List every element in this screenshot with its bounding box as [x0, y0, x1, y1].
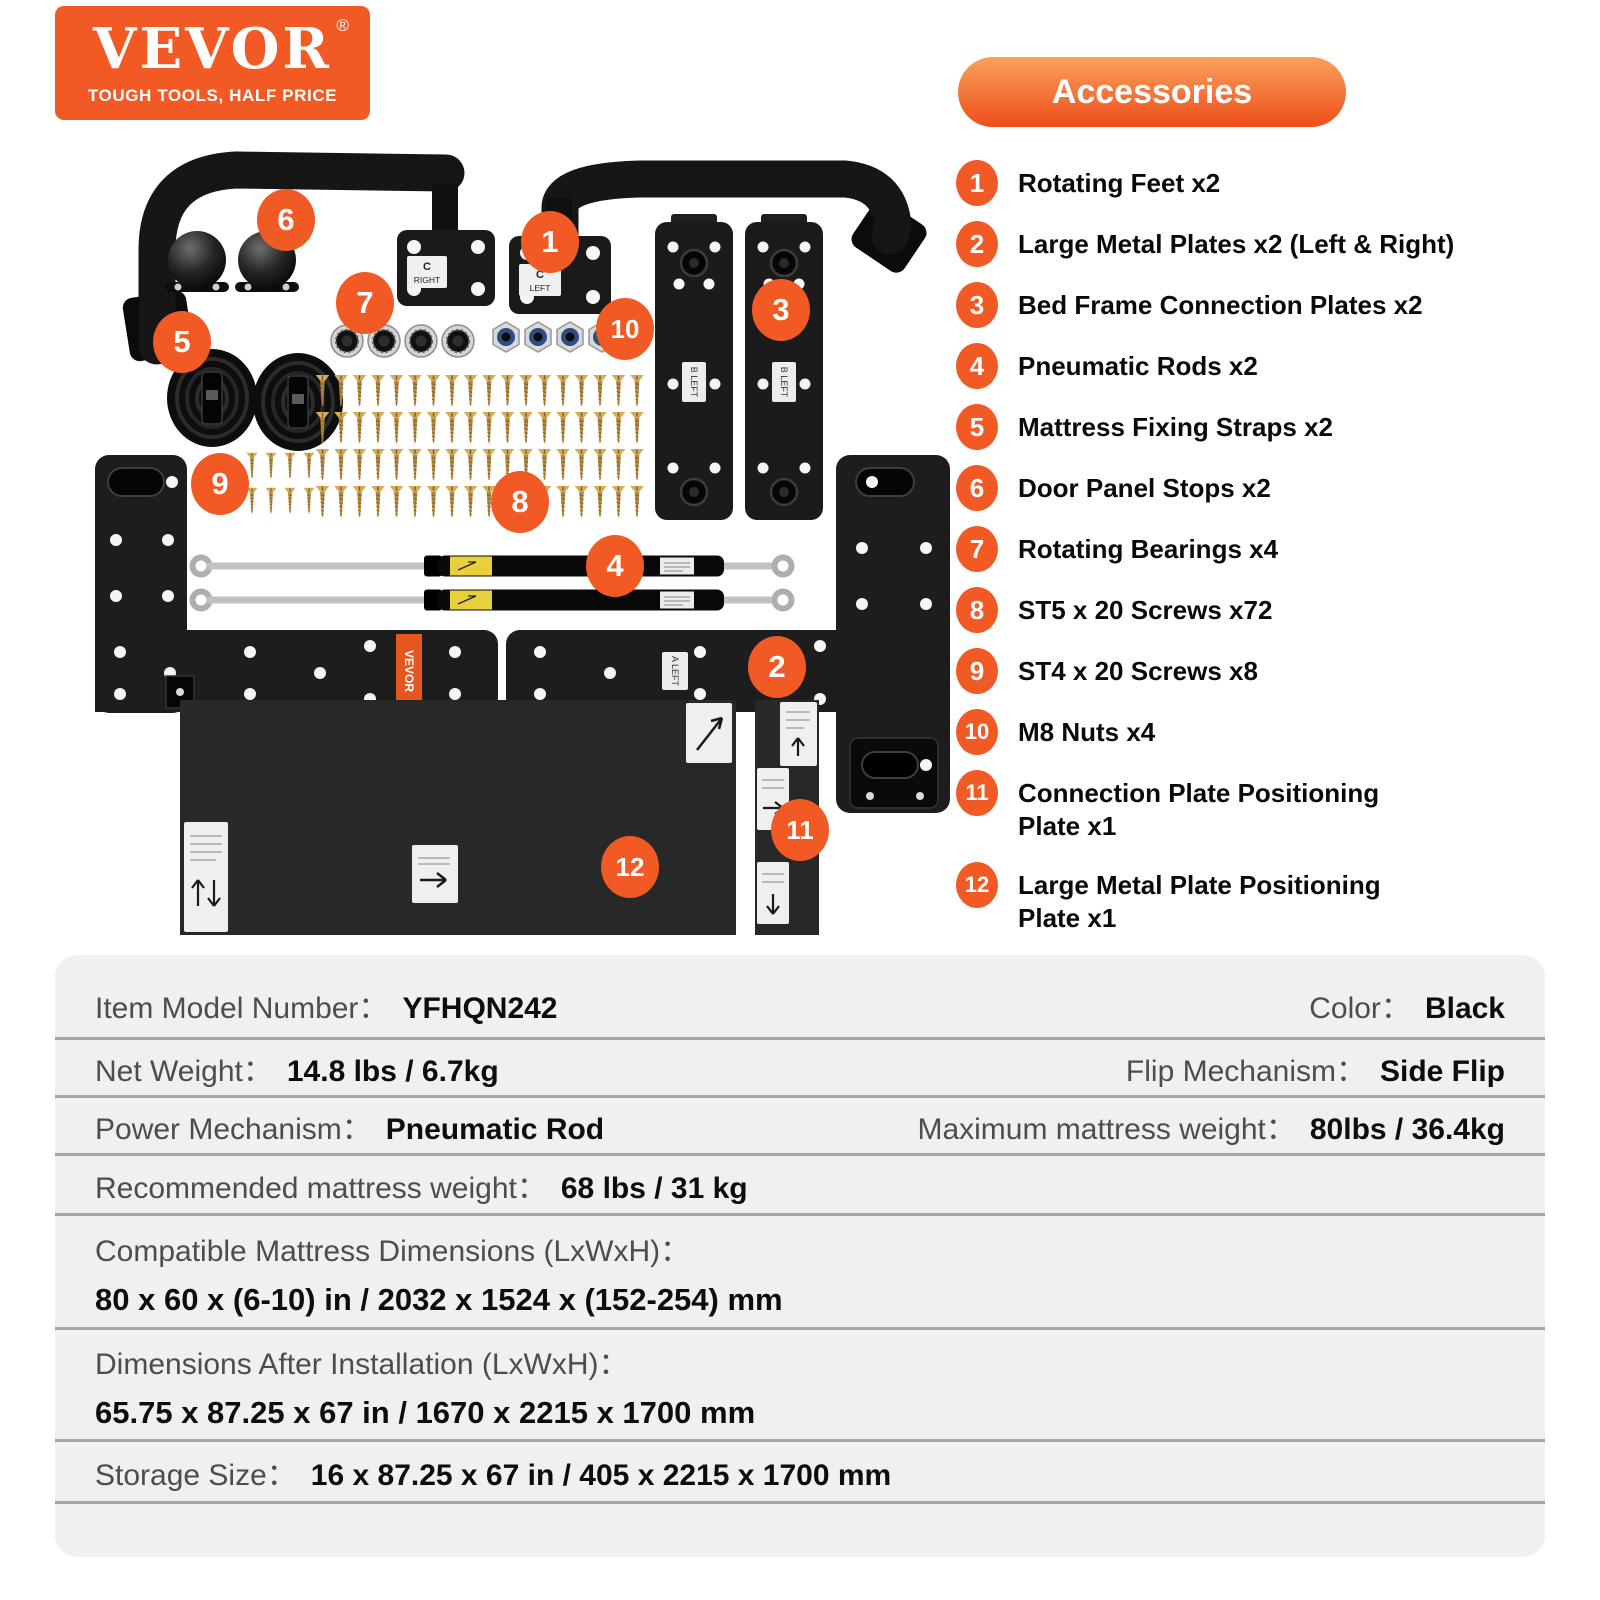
item-number-badge: 7: [956, 526, 998, 572]
accessory-label-line: Pneumatic Rods x2: [1018, 350, 1258, 383]
spec-cell: Net Weight：14.8 lbs / 6.7kg: [95, 1046, 499, 1090]
spec-field-label: Color：: [1309, 983, 1411, 1027]
bed-frame-connection-plates: B LEFTB LEFT: [655, 214, 823, 520]
accessory-label-line: Bed Frame Connection Plates x2: [1018, 289, 1423, 322]
brand-logo: VEVOR® TOUGH TOOLS, HALF PRICE: [55, 6, 370, 120]
callout-badge: 7: [336, 272, 394, 334]
accessory-label: Rotating Feet x2: [1018, 160, 1220, 200]
callout-badge: 2: [748, 636, 806, 698]
accessory-label: Rotating Bearings x4: [1018, 526, 1278, 566]
accessory-label: ST5 x 20 Screws x72: [1018, 587, 1272, 627]
spec-field-label: Maximum mattress weight：: [917, 1104, 1295, 1148]
spec-field-value: 65.75 x 87.25 x 67 in / 1670 x 2215 x 17…: [95, 1395, 755, 1431]
spec-field-value: YFHQN242: [402, 992, 557, 1026]
spec-cell: Item Model Number：YFHQN242: [95, 983, 558, 1027]
spec-cell: Power Mechanism：Pneumatic Rod: [95, 1104, 604, 1148]
spec-field-label: Compatible Mattress Dimensions (LxWxH)：: [95, 1226, 690, 1270]
spec-field-value: Black: [1425, 992, 1505, 1026]
accessory-label: Door Panel Stops x2: [1018, 465, 1271, 505]
item-number-badge: 9: [956, 648, 998, 694]
callout-badge: 1: [521, 211, 579, 273]
spec-field-label: Storage Size：: [95, 1450, 297, 1494]
accessory-label-line: Mattress Fixing Straps x2: [1018, 411, 1333, 444]
spec-cell: Recommended mattress weight：68 lbs / 31 …: [95, 1163, 748, 1207]
callout-badge: 8: [491, 471, 549, 533]
accessory-label-line: Plate x1: [1018, 810, 1379, 843]
spec-row: Dimensions After Installation (LxWxH)：65…: [55, 1330, 1545, 1442]
item-number-badge: 1: [956, 160, 998, 206]
bracket-c-left-label2: LEFT: [530, 283, 551, 293]
accessory-label: M8 Nuts x4: [1018, 709, 1155, 749]
callout-badge: 12: [601, 836, 659, 898]
spec-cell: Color：Black: [1309, 983, 1505, 1027]
spec-row: Compatible Mattress Dimensions (LxWxH)：8…: [55, 1216, 1545, 1330]
brand-wordmark: VEVOR: [93, 16, 332, 82]
large-plate-a-left-label: A LEFT: [670, 656, 680, 687]
callout-badge: 4: [586, 535, 644, 597]
registered-trademark-icon: ®: [336, 17, 352, 34]
accessory-label-line: Rotating Bearings x4: [1018, 533, 1278, 566]
accessory-label-line: Plate x1: [1018, 902, 1381, 935]
large-plate-positioning-plate: [180, 700, 736, 935]
callout-badge: 6: [257, 189, 315, 251]
accessory-label-line: ST4 x 20 Screws x8: [1018, 655, 1258, 688]
callout-badge: 9: [191, 453, 249, 515]
spec-table: Item Model Number：YFHQN242Color：BlackNet…: [55, 955, 1545, 1557]
connection-plate-b-left-label: B LEFT: [779, 367, 789, 398]
spec-field-value: 16 x 87.25 x 67 in / 405 x 2215 x 1700 m…: [311, 1459, 891, 1493]
accessories-list: 1Rotating Feet x22Large Metal Plates x2 …: [956, 160, 1568, 954]
brand-logo-text: VEVOR®: [93, 21, 332, 77]
accessory-item: 7Rotating Bearings x4: [956, 526, 1568, 587]
spec-cell: Maximum mattress weight：80lbs / 36.4kg: [917, 1104, 1505, 1148]
callout-badge: 5: [153, 311, 211, 373]
accessory-label-line: Door Panel Stops x2: [1018, 472, 1271, 505]
connection-plate-b-left-label: B LEFT: [689, 367, 699, 398]
item-number-badge: 6: [956, 465, 998, 511]
product-infographic: VEVOR® TOUGH TOOLS, HALF PRICE Accessori…: [0, 0, 1600, 1600]
item-number-badge: 4: [956, 343, 998, 389]
accessory-item: 3Bed Frame Connection Plates x2: [956, 282, 1568, 343]
side-vevor-label: VEVOR: [402, 650, 416, 692]
spec-field-value: Side Flip: [1380, 1055, 1505, 1089]
item-number-badge: 11: [956, 770, 998, 816]
accessory-label: Mattress Fixing Straps x2: [1018, 404, 1333, 444]
spec-field-label: Flip Mechanism：: [1126, 1046, 1366, 1090]
spec-field-value: 80lbs / 36.4kg: [1310, 1113, 1505, 1147]
accessory-item: 5Mattress Fixing Straps x2: [956, 404, 1568, 465]
item-number-badge: 10: [956, 709, 998, 755]
spec-row: Item Model Number：YFHQN242Color：Black: [55, 955, 1545, 1040]
spec-field-value: Pneumatic Rod: [386, 1113, 604, 1147]
accessory-label-line: Large Metal Plate Positioning: [1018, 869, 1381, 902]
spec-field-value: 80 x 60 x (6-10) in / 2032 x 1524 x (152…: [95, 1282, 783, 1318]
accessories-title: Accessories: [1052, 73, 1252, 112]
accessory-item: 9ST4 x 20 Screws x8: [956, 648, 1568, 709]
accessory-label: Large Metal Plate PositioningPlate x1: [1018, 862, 1381, 935]
accessory-label-line: Large Metal Plates x2 (Left & Right): [1018, 228, 1454, 261]
accessory-item: 8ST5 x 20 Screws x72: [956, 587, 1568, 648]
accessory-item: 10M8 Nuts x4: [956, 709, 1568, 770]
item-number-badge: 2: [956, 221, 998, 267]
accessory-item: 11Connection Plate PositioningPlate x1: [956, 770, 1568, 862]
accessory-item: 6Door Panel Stops x2: [956, 465, 1568, 526]
spec-field-label: Net Weight：: [95, 1046, 273, 1090]
bracket-c-right-label2: RIGHT: [414, 275, 440, 285]
accessory-item: 2Large Metal Plates x2 (Left & Right): [956, 221, 1568, 282]
item-number-badge: 8: [956, 587, 998, 633]
parts-photo: C RIGHT C LEFT: [55, 130, 960, 945]
item-number-badge: 3: [956, 282, 998, 328]
spec-field-label: Dimensions After Installation (LxWxH)：: [95, 1339, 629, 1383]
pneumatic-rods: [193, 556, 792, 611]
callout-badge: 11: [771, 799, 829, 861]
accessory-label: Large Metal Plates x2 (Left & Right): [1018, 221, 1454, 261]
spec-field-label: Item Model Number：: [95, 983, 388, 1027]
st5-screws: [316, 375, 644, 517]
accessory-item: 1Rotating Feet x2: [956, 160, 1568, 221]
accessory-item: 4Pneumatic Rods x2: [956, 343, 1568, 404]
spec-row: Recommended mattress weight：68 lbs / 31 …: [55, 1156, 1545, 1216]
item-number-badge: 12: [956, 862, 998, 908]
spec-row: Net Weight：14.8 lbs / 6.7kgFlip Mechanis…: [55, 1040, 1545, 1098]
accessories-title-pill: Accessories: [958, 57, 1346, 127]
callout-badge: 10: [596, 298, 654, 360]
item-number-badge: 5: [956, 404, 998, 450]
accessory-label: Pneumatic Rods x2: [1018, 343, 1258, 383]
spec-field-value: 68 lbs / 31 kg: [561, 1172, 748, 1206]
bracket-c-right-label: C: [423, 261, 431, 273]
accessory-label-line: Connection Plate Positioning: [1018, 777, 1379, 810]
accessory-label-line: ST5 x 20 Screws x72: [1018, 594, 1272, 627]
accessory-label: ST4 x 20 Screws x8: [1018, 648, 1258, 688]
accessory-label: Bed Frame Connection Plates x2: [1018, 282, 1423, 322]
brand-tagline: TOUGH TOOLS, HALF PRICE: [55, 86, 370, 106]
spec-row: Storage Size：16 x 87.25 x 67 in / 405 x …: [55, 1442, 1545, 1504]
mounting-bracket-c-right: C RIGHT: [397, 230, 495, 306]
spec-field-label: Power Mechanism：: [95, 1104, 372, 1148]
accessory-label-line: M8 Nuts x4: [1018, 716, 1155, 749]
callout-badge: 3: [752, 279, 810, 341]
spec-row: Power Mechanism：Pneumatic RodMaximum mat…: [55, 1098, 1545, 1156]
spec-field-value: 14.8 lbs / 6.7kg: [287, 1055, 499, 1089]
st4-screws: [246, 453, 314, 513]
spec-field-label: Recommended mattress weight：: [95, 1163, 547, 1207]
accessory-label-line: Rotating Feet x2: [1018, 167, 1220, 200]
accessory-label: Connection Plate PositioningPlate x1: [1018, 770, 1379, 843]
large-metal-plate-left: VEVOR: [95, 455, 498, 713]
spec-cell: Flip Mechanism：Side Flip: [1126, 1046, 1505, 1090]
accessory-item: 12Large Metal Plate PositioningPlate x1: [956, 862, 1568, 954]
spec-cell: Storage Size：16 x 87.25 x 67 in / 405 x …: [95, 1450, 891, 1494]
